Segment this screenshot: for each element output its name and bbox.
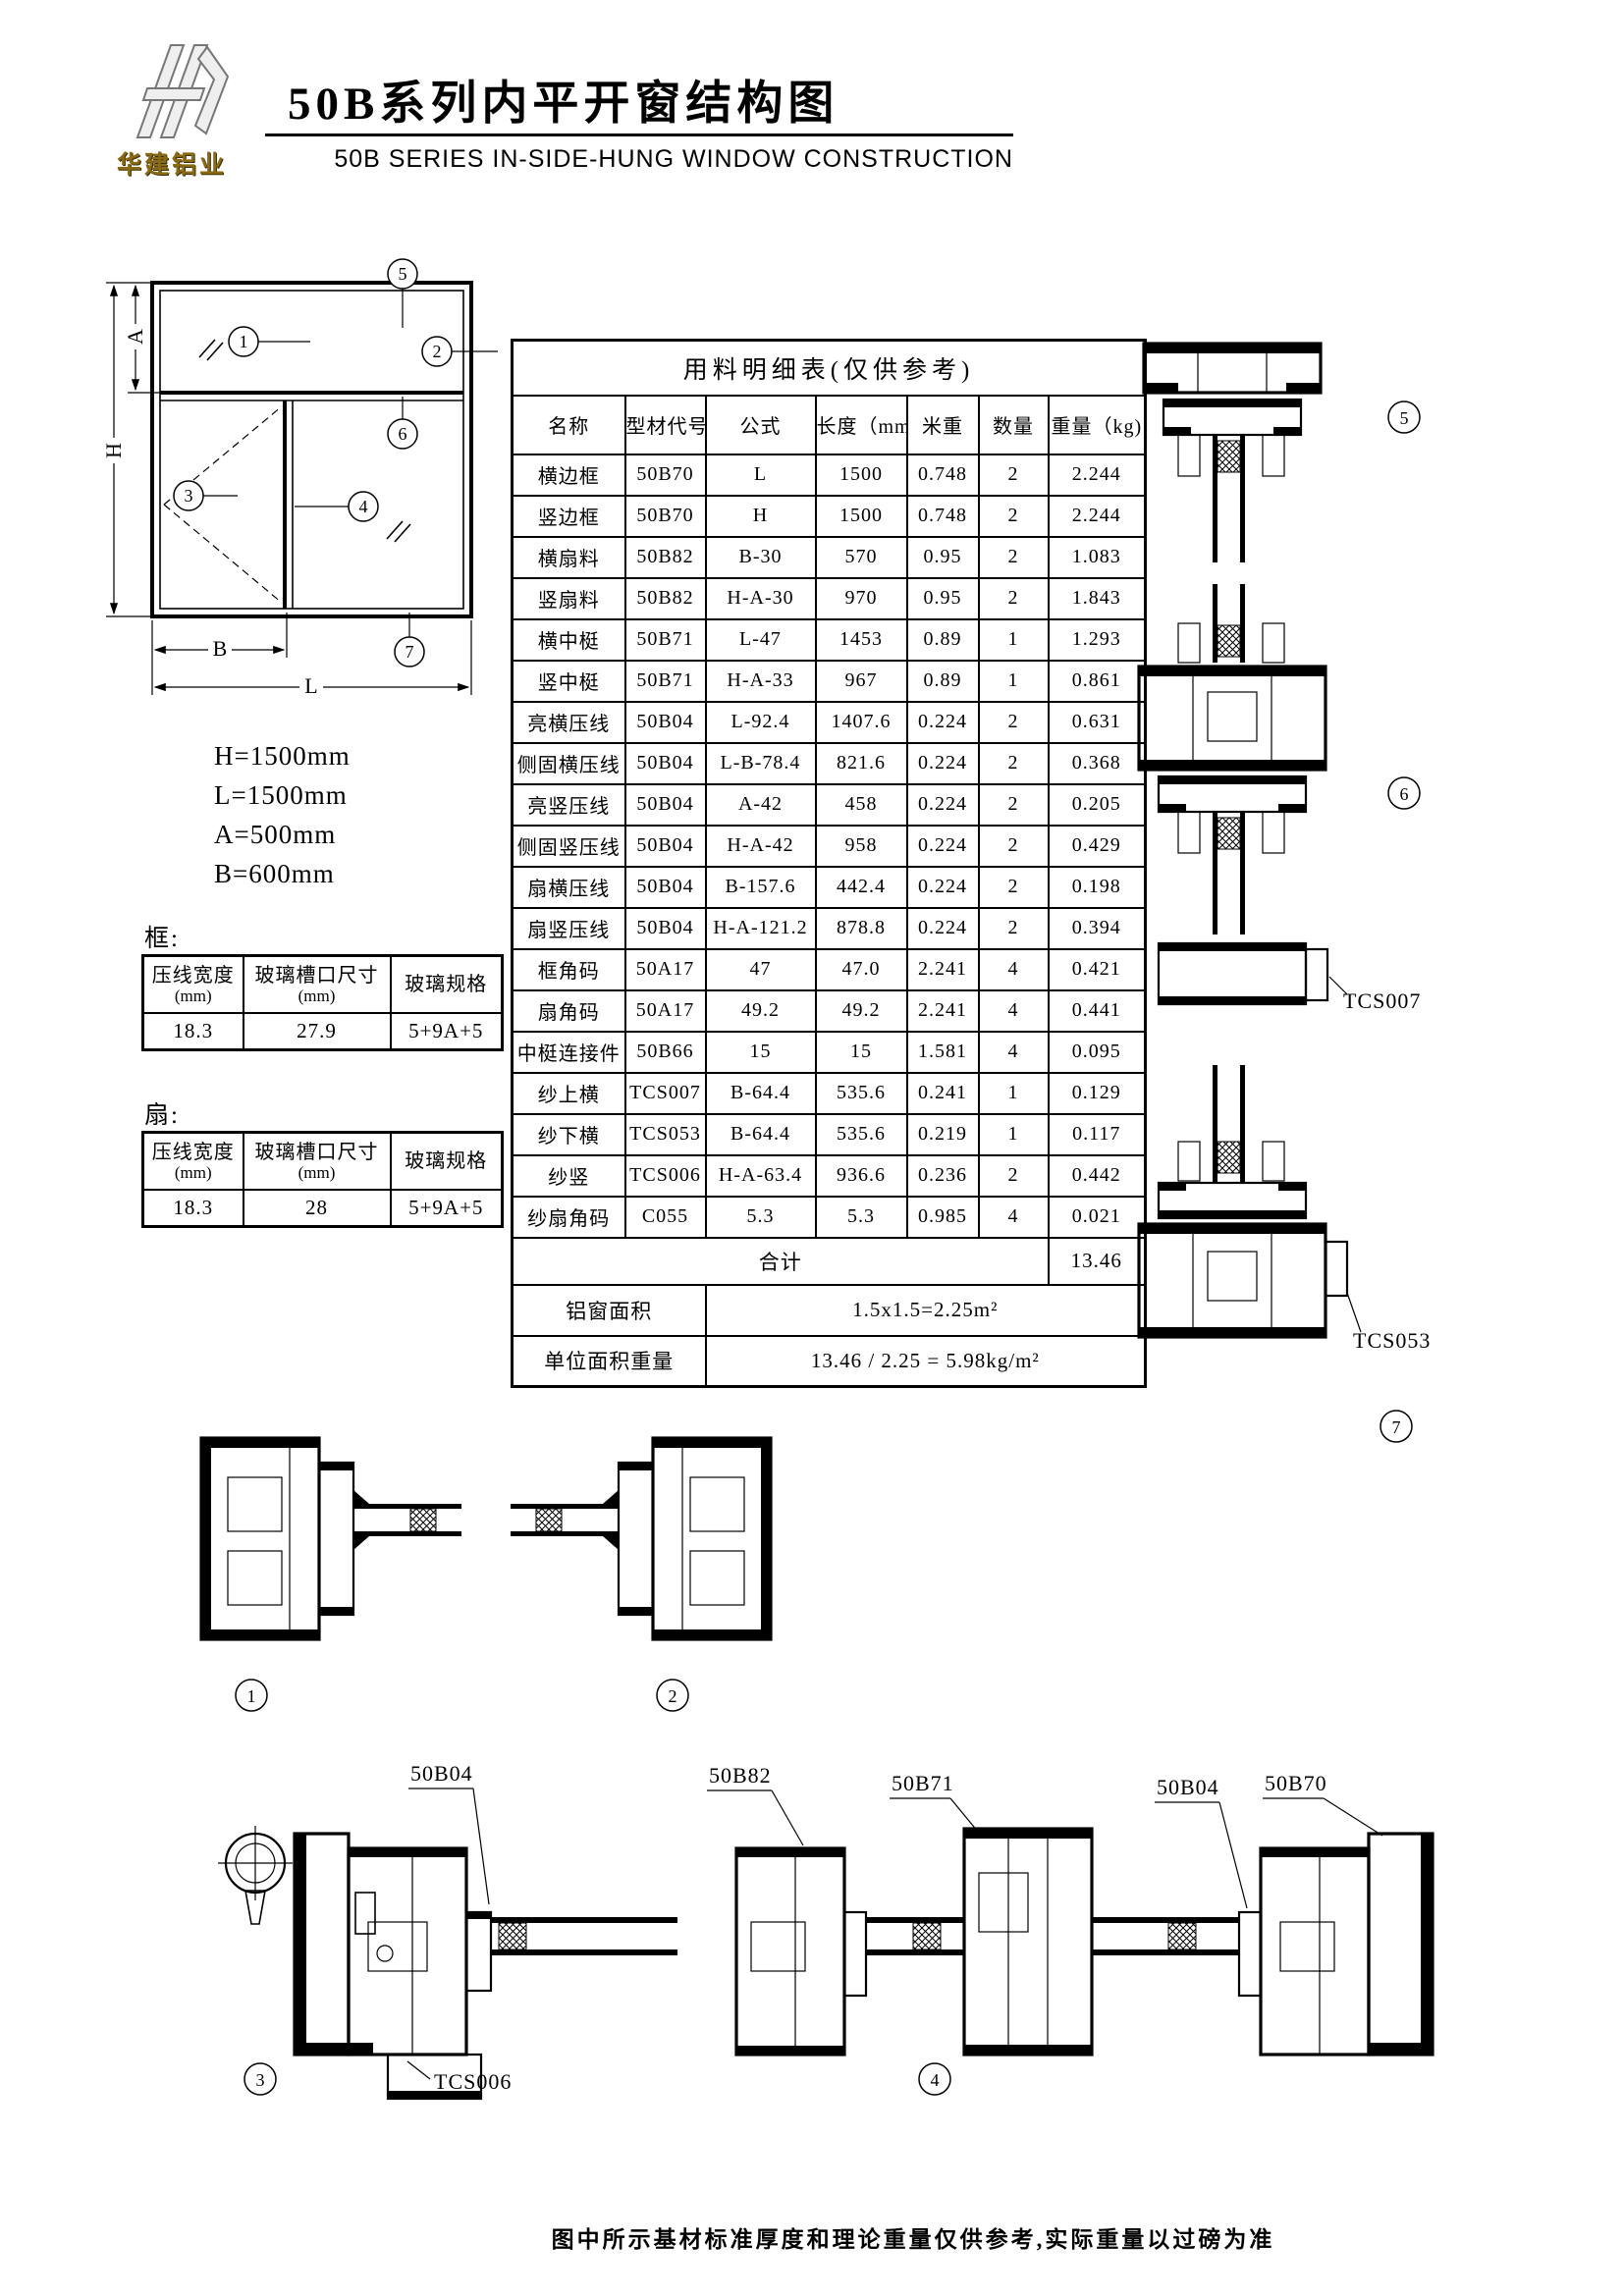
bom-cell-name: 竖中梃 <box>513 661 625 702</box>
section-2-profile <box>511 1438 771 1639</box>
tcs053-label: TCS053 <box>1353 1328 1431 1353</box>
bom-cell-length: 1407.6 <box>816 702 907 743</box>
tcs006-label: TCS006 <box>434 2069 512 2094</box>
frame-pressline-value: 18.3 <box>143 1013 243 1050</box>
bom-row: 扇横压线 50B04 B-157.6 442.4 0.224 2 0.198 <box>513 867 1146 908</box>
sash-table: 压线宽度 (mm) 玻璃槽口尺寸 (mm) 玻璃规格 18.3 28 5+9A+… <box>141 1131 504 1228</box>
bom-cell-qty: 2 <box>979 743 1049 784</box>
bom-cell-formula: H-A-42 <box>706 826 816 867</box>
section-5-profile <box>1144 344 1321 562</box>
bom-row: 中梃连接件 50B66 15 15 1.581 4 0.095 <box>513 1032 1146 1073</box>
bom-cell-qty: 2 <box>979 702 1049 743</box>
bom-cell-mweight: 0.224 <box>907 702 979 743</box>
bom-cell-qty: 4 <box>979 949 1049 990</box>
dim-letter-h: H <box>101 443 126 458</box>
bom-cell-mweight: 2.241 <box>907 990 979 1032</box>
bom-cell-mweight: 0.224 <box>907 743 979 784</box>
bom-cell-code: 50B70 <box>625 454 706 496</box>
label-50b04-right: 50B04 <box>1157 1775 1219 1799</box>
col-glass-groove: 玻璃槽口尺寸 <box>244 1141 390 1164</box>
bom-cell-qty: 2 <box>979 496 1049 537</box>
frame-table: 压线宽度 (mm) 玻璃槽口尺寸 (mm) 玻璃规格 18.3 27.9 5+9… <box>141 954 504 1051</box>
bom-cell-qty: 2 <box>979 578 1049 619</box>
vertical-sections: 5 6 <box>1119 339 1448 1472</box>
bom-cell-code: 50B04 <box>625 702 706 743</box>
bom-row: 亮竖压线 50B04 A-42 458 0.224 2 0.205 <box>513 784 1146 826</box>
bom-cell-formula: 5.3 <box>706 1197 816 1238</box>
bom-cell-formula: 47 <box>706 949 816 990</box>
bom-row: 扇角码 50A17 49.2 49.2 2.241 4 0.441 <box>513 990 1146 1032</box>
frame-glass-value: 5+9A+5 <box>391 1013 503 1050</box>
bom-cell-length: 1453 <box>816 619 907 661</box>
logo-text: 华建铝业 <box>88 145 255 181</box>
sash-table-header: 压线宽度 (mm) 玻璃槽口尺寸 (mm) 玻璃规格 <box>143 1133 503 1190</box>
svg-text:6: 6 <box>1400 784 1409 804</box>
window-elevation: A H B L 5 1 2 6 3 4 7 <box>98 253 503 707</box>
bom-cell-name: 扇竖压线 <box>513 908 625 949</box>
bom-area-label: 铝窗面积 <box>513 1285 706 1336</box>
bom-cell-code: 50B70 <box>625 496 706 537</box>
svg-text:5: 5 <box>1400 408 1409 428</box>
bom-cell-mweight: 0.95 <box>907 578 979 619</box>
svg-text:1: 1 <box>247 1686 256 1706</box>
svg-text:2: 2 <box>433 342 442 361</box>
bom-cell-code: TCS007 <box>625 1073 706 1114</box>
bom-cell-mweight: 0.224 <box>907 784 979 826</box>
screen-top-rail <box>1306 949 1327 1000</box>
frame-table-label: 框: <box>144 919 180 954</box>
bom-cell-length: 442.4 <box>816 867 907 908</box>
bom-cell-code: 50B04 <box>625 867 706 908</box>
bom-cell-formula: H-A-121.2 <box>706 908 816 949</box>
bom-row: 纱上横 TCS007 B-64.4 535.6 0.241 1 0.129 <box>513 1073 1146 1114</box>
dimension-values: H=1500mmL=1500mmA=500mmB=600mm <box>214 736 351 893</box>
sash-table-label: 扇: <box>144 1095 180 1131</box>
label-50b04-left: 50B04 <box>410 1761 473 1786</box>
bom-cell-mweight: 0.748 <box>907 454 979 496</box>
bom-row: 纱扇角码 C055 5.3 5.3 0.985 4 0.021 <box>513 1197 1146 1238</box>
jamb-sections: 1 2 <box>128 1418 776 1728</box>
svg-text:5: 5 <box>399 264 407 284</box>
section-7-profile <box>1139 1065 1347 1337</box>
bom-cell-name: 纱竖 <box>513 1155 625 1197</box>
bom-cell-mweight: 2.241 <box>907 949 979 990</box>
bom-cell-length: 967 <box>816 661 907 702</box>
bom-cell-qty: 2 <box>979 867 1049 908</box>
bom-cell-formula: H-A-63.4 <box>706 1155 816 1197</box>
bom-cell-length: 936.6 <box>816 1155 907 1197</box>
bom-cell-name: 亮横压线 <box>513 702 625 743</box>
bom-cell-length: 535.6 <box>816 1073 907 1114</box>
bom-cell-length: 970 <box>816 578 907 619</box>
bom-cell-formula: L-92.4 <box>706 702 816 743</box>
bom-cell-code: 50B04 <box>625 908 706 949</box>
glazing-spacer <box>1217 441 1240 472</box>
bom-cell-formula: L <box>706 454 816 496</box>
bom-row: 横扇料 50B82 B-30 570 0.95 2 1.083 <box>513 537 1146 578</box>
page-subtitle: 50B SERIES IN-SIDE-HUNG WINDOW CONSTRUCT… <box>265 145 1013 174</box>
bom-cell-qty: 4 <box>979 990 1049 1032</box>
bom-row: 亮横压线 50B04 L-92.4 1407.6 0.224 2 0.631 <box>513 702 1146 743</box>
bom-cell-code: TCS006 <box>625 1155 706 1197</box>
dim-letter-a: A <box>123 329 147 345</box>
bom-header-mweight: 米重 <box>907 396 979 454</box>
bom-cell-mweight: 0.236 <box>907 1155 979 1197</box>
bom-cell-code: 50B04 <box>625 826 706 867</box>
bom-cell-length: 878.8 <box>816 908 907 949</box>
bom-cell-mweight: 0.89 <box>907 619 979 661</box>
frame-groove-value: 27.9 <box>243 1013 391 1050</box>
section-4-profile <box>736 1829 1433 2055</box>
bom-row: 竖扇料 50B82 H-A-30 970 0.95 2 1.843 <box>513 578 1146 619</box>
bom-row: 侧固横压线 50B04 L-B-78.4 821.6 0.224 2 0.368 <box>513 743 1146 784</box>
bom-cell-code: 50B04 <box>625 784 706 826</box>
section-6-profile <box>1139 584 1327 1004</box>
bom-cell-code: 50B82 <box>625 537 706 578</box>
section-3-profile <box>218 1826 677 2099</box>
bom-row: 横边框 50B70 L 1500 0.748 2 2.244 <box>513 454 1146 496</box>
bom-cell-formula: B-64.4 <box>706 1114 816 1155</box>
bom-header-formula: 公式 <box>706 396 816 454</box>
frame-outline <box>152 283 471 616</box>
bom-row: 侧固竖压线 50B04 H-A-42 958 0.224 2 0.429 <box>513 826 1146 867</box>
svg-text:1: 1 <box>240 332 248 351</box>
sash-table-row: 18.3 28 5+9A+5 <box>143 1190 503 1227</box>
dimension-value: A=500mm <box>214 815 351 854</box>
bom-cell-mweight: 0.241 <box>907 1073 979 1114</box>
bom-cell-length: 47.0 <box>816 949 907 990</box>
bom-cell-length: 821.6 <box>816 743 907 784</box>
bom-cell-mweight: 0.95 <box>907 537 979 578</box>
bom-row: 扇竖压线 50B04 H-A-121.2 878.8 0.224 2 0.394 <box>513 908 1146 949</box>
svg-text:6: 6 <box>399 424 407 444</box>
label-50b82: 50B82 <box>709 1763 772 1788</box>
bom-cell-qty: 2 <box>979 826 1049 867</box>
bottom-sections: 50B04 50B82 50B71 50B04 50B70 <box>128 1735 1443 2123</box>
bom-total-row: 合计 13.46 <box>513 1238 1146 1285</box>
bom-cell-formula: 15 <box>706 1032 816 1073</box>
bom-cell-qty: 1 <box>979 1114 1049 1155</box>
bom-cell-mweight: 1.581 <box>907 1032 979 1073</box>
glass-hatch <box>199 340 410 542</box>
bom-cell-name: 中梃连接件 <box>513 1032 625 1073</box>
bom-row: 纱竖 TCS006 H-A-63.4 936.6 0.236 2 0.442 <box>513 1155 1146 1197</box>
col-glass-spec: 玻璃规格 <box>392 973 502 996</box>
bom-cell-code: 50B71 <box>625 619 706 661</box>
sash-groove-value: 28 <box>243 1190 391 1227</box>
bom-cell-qty: 4 <box>979 1032 1049 1073</box>
bom-cell-name: 亮竖压线 <box>513 784 625 826</box>
bom-cell-formula: 49.2 <box>706 990 816 1032</box>
bom-unit-weight-label: 单位面积重量 <box>513 1336 706 1387</box>
bom-table: 用料明细表(仅供参考) 名称 型材代号 公式 长度（mm) 米重 数量 重量（k… <box>511 339 1147 1388</box>
bom-cell-qty: 2 <box>979 908 1049 949</box>
bom-cell-name: 纱上横 <box>513 1073 625 1114</box>
bom-cell-length: 1500 <box>816 496 907 537</box>
bom-cell-length: 15 <box>816 1032 907 1073</box>
bom-cell-formula: H-A-33 <box>706 661 816 702</box>
bom-area-row: 铝窗面积 1.5x1.5=2.25m² <box>513 1285 1146 1336</box>
bom-cell-mweight: 0.224 <box>907 826 979 867</box>
bom-row: 框角码 50A17 47 47.0 2.241 4 0.421 <box>513 949 1146 990</box>
bom-cell-length: 958 <box>816 826 907 867</box>
bom-cell-formula: H-A-30 <box>706 578 816 619</box>
bom-cell-length: 49.2 <box>816 990 907 1032</box>
bom-cell-code: 50A17 <box>625 990 706 1032</box>
label-50b71: 50B71 <box>892 1771 954 1795</box>
bom-area-value: 1.5x1.5=2.25m² <box>706 1285 1146 1336</box>
bom-cell-qty: 2 <box>979 1155 1049 1197</box>
bom-cell-name: 横中梃 <box>513 619 625 661</box>
bom-cell-qty: 2 <box>979 454 1049 496</box>
bom-header-row: 名称 型材代号 公式 长度（mm) 米重 数量 重量（kg) <box>513 396 1146 454</box>
bom-cell-mweight: 0.219 <box>907 1114 979 1155</box>
bom-cell-name: 框角码 <box>513 949 625 990</box>
bom-title: 用料明细表(仅供参考) <box>513 341 1146 396</box>
dimension-value: H=1500mm <box>214 736 351 775</box>
col-pressline-width: 压线宽度 <box>144 1141 243 1164</box>
footer-note: 图中所示基材标准厚度和理论重量仅供参考,实际重量以过磅为准 <box>177 2220 1623 2254</box>
bom-cell-length: 570 <box>816 537 907 578</box>
bom-row: 竖边框 50B70 H 1500 0.748 2 2.244 <box>513 496 1146 537</box>
bom-cell-formula: A-42 <box>706 784 816 826</box>
bom-cell-formula: L-B-78.4 <box>706 743 816 784</box>
bom-cell-code: 50B82 <box>625 578 706 619</box>
bom-header-name: 名称 <box>513 396 625 454</box>
col-pressline-width: 压线宽度 <box>144 964 243 988</box>
sash-glass-value: 5+9A+5 <box>391 1190 503 1227</box>
bom-cell-qty: 4 <box>979 1197 1049 1238</box>
bom-cell-name: 竖扇料 <box>513 578 625 619</box>
drawing-sheet: 华建铝业 50B系列内平开窗结构图 50B SERIES IN-SIDE-HUN… <box>0 0 1623 2296</box>
bom-cell-mweight: 0.985 <box>907 1197 979 1238</box>
bom-cell-qty: 1 <box>979 619 1049 661</box>
bom-cell-code: 50B04 <box>625 743 706 784</box>
bom-cell-formula: B-30 <box>706 537 816 578</box>
bom-cell-name: 扇横压线 <box>513 867 625 908</box>
svg-text:2: 2 <box>669 1686 677 1706</box>
bom-cell-name: 侧固横压线 <box>513 743 625 784</box>
svg-text:3: 3 <box>185 486 193 506</box>
bom-row: 竖中梃 50B71 H-A-33 967 0.89 1 0.861 <box>513 661 1146 702</box>
bom-cell-name: 竖边框 <box>513 496 625 537</box>
col-glass-spec: 玻璃规格 <box>392 1149 502 1173</box>
dimension-value: B=600mm <box>214 854 351 893</box>
bom-cell-length: 5.3 <box>816 1197 907 1238</box>
bom-cell-name: 横边框 <box>513 454 625 496</box>
title-divider <box>265 133 1013 136</box>
dim-letter-b: B <box>213 636 228 661</box>
bom-cell-mweight: 0.89 <box>907 661 979 702</box>
svg-text:3: 3 <box>256 2070 265 2090</box>
bom-cell-name: 扇角码 <box>513 990 625 1032</box>
bom-cell-formula: L-47 <box>706 619 816 661</box>
bom-cell-formula: B-64.4 <box>706 1073 816 1114</box>
section-1-profile <box>201 1438 461 1639</box>
dimension-value: L=1500mm <box>214 775 351 815</box>
bom-cell-name: 侧固竖压线 <box>513 826 625 867</box>
tcs007-label: TCS007 <box>1343 988 1421 1013</box>
label-50b70: 50B70 <box>1265 1771 1327 1795</box>
bom-header-qty: 数量 <box>979 396 1049 454</box>
bom-cell-mweight: 0.224 <box>907 867 979 908</box>
bom-header-length: 长度（mm) <box>816 396 907 454</box>
bom-header-code: 型材代号 <box>625 396 706 454</box>
company-logo <box>110 37 238 145</box>
bom-cell-qty: 1 <box>979 661 1049 702</box>
bom-cell-name: 纱扇角码 <box>513 1197 625 1238</box>
bom-unit-weight-value: 13.46 / 2.25 = 5.98kg/m² <box>706 1336 1146 1387</box>
bom-cell-length: 1500 <box>816 454 907 496</box>
bom-cell-formula: B-157.6 <box>706 867 816 908</box>
dim-letter-l: L <box>304 673 317 698</box>
bom-row: 横中梃 50B71 L-47 1453 0.89 1 1.293 <box>513 619 1146 661</box>
svg-text:7: 7 <box>1392 1417 1401 1437</box>
bom-cell-qty: 2 <box>979 784 1049 826</box>
frame-table-header: 压线宽度 (mm) 玻璃槽口尺寸 (mm) 玻璃规格 <box>143 956 503 1013</box>
svg-text:4: 4 <box>931 2070 940 2090</box>
bom-cell-code: 50B71 <box>625 661 706 702</box>
bom-cell-code: C055 <box>625 1197 706 1238</box>
bom-cell-code: TCS053 <box>625 1114 706 1155</box>
bom-row: 纱下横 TCS053 B-64.4 535.6 0.219 1 0.117 <box>513 1114 1146 1155</box>
bom-cell-code: 50B66 <box>625 1032 706 1073</box>
bom-cell-length: 458 <box>816 784 907 826</box>
bom-cell-qty: 1 <box>979 1073 1049 1114</box>
bom-cell-mweight: 0.748 <box>907 496 979 537</box>
bom-total-label: 合计 <box>513 1238 1049 1285</box>
bom-cell-mweight: 0.224 <box>907 908 979 949</box>
svg-text:4: 4 <box>359 497 368 516</box>
bom-cell-formula: H <box>706 496 816 537</box>
bom-unit-weight-row: 单位面积重量 13.46 / 2.25 = 5.98kg/m² <box>513 1336 1146 1387</box>
screen-bottom-rail <box>1325 1242 1347 1296</box>
bom-cell-qty: 2 <box>979 537 1049 578</box>
col-glass-groove: 玻璃槽口尺寸 <box>244 964 390 988</box>
bom-cell-name: 横扇料 <box>513 537 625 578</box>
page-title: 50B系列内平开窗结构图 <box>288 65 839 133</box>
glazing-spacer <box>499 1923 526 1949</box>
bom-cell-code: 50A17 <box>625 949 706 990</box>
bom-cell-length: 535.6 <box>816 1114 907 1155</box>
bom-title-row: 用料明细表(仅供参考) <box>513 341 1146 396</box>
frame-table-row: 18.3 27.9 5+9A+5 <box>143 1013 503 1050</box>
bom-cell-name: 纱下横 <box>513 1114 625 1155</box>
svg-text:7: 7 <box>406 642 414 662</box>
hardware-detail <box>355 1893 375 1934</box>
sash-pressline-value: 18.3 <box>143 1190 243 1227</box>
